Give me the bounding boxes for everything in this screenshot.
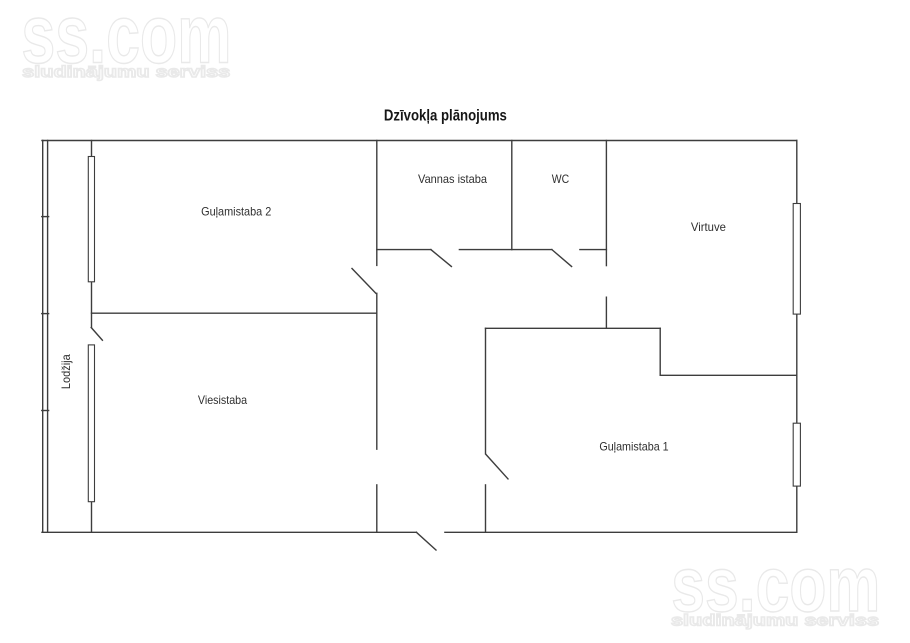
svg-text:Guļamistaba 1: Guļamistaba 1 xyxy=(599,440,669,454)
svg-text:Viesistaba: Viesistaba xyxy=(198,393,247,407)
svg-text:sludinājumu serviss: sludinājumu serviss xyxy=(671,613,879,630)
svg-text:Guļamistaba 2: Guļamistaba 2 xyxy=(201,205,271,219)
svg-text:Lodžija: Lodžija xyxy=(59,354,73,389)
svg-text:Vannas istaba: Vannas istaba xyxy=(418,172,487,186)
svg-text:sludinājumu serviss: sludinājumu serviss xyxy=(22,64,230,81)
svg-text:Dzīvokļa plānojums: Dzīvokļa plānojums xyxy=(384,108,507,125)
svg-text:WC: WC xyxy=(552,172,570,186)
svg-text:Virtuve: Virtuve xyxy=(691,220,726,234)
